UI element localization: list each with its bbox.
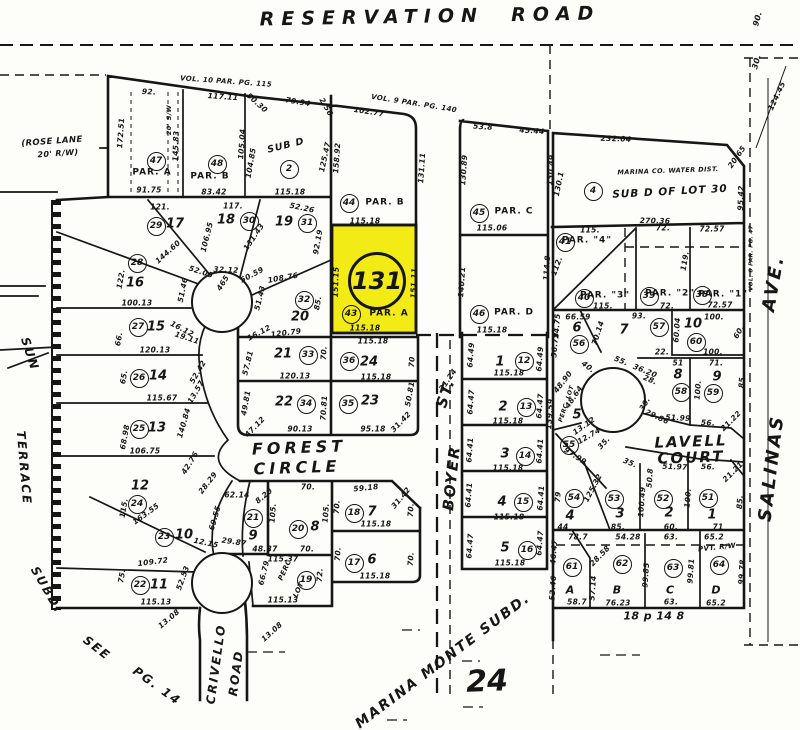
parcel-circle-33: 33	[299, 346, 318, 365]
dim-label: 76.23	[605, 599, 630, 607]
dim-label: 100.49	[637, 486, 647, 517]
dim-label: 105.	[322, 503, 331, 523]
dim-label: 64.41	[465, 437, 474, 463]
parcel-circle-60: 60	[687, 333, 706, 352]
parcel-circle-15: 15	[514, 493, 533, 512]
dim-label: 45.44	[519, 126, 545, 135]
parcel-circle-32: 32	[295, 291, 314, 310]
parcel-circle-45: 45	[470, 204, 489, 223]
parcel-circle-57: 57	[650, 318, 669, 337]
dim-label: 79	[554, 491, 562, 503]
parcel-circle-40: 40	[575, 289, 594, 308]
parcel-circle-48: 48	[208, 155, 227, 174]
dim-label: 64.41	[464, 482, 473, 508]
dim-label: 93.	[632, 312, 646, 320]
parcel-circle-4: 4	[584, 182, 603, 201]
dim-label: 172.51	[116, 117, 126, 148]
parcel-circle-23: 23	[155, 528, 174, 547]
lot-label: 5	[572, 409, 581, 422]
dim-label: 100.	[704, 313, 724, 321]
dim-label: 115.18	[361, 520, 392, 528]
dim-label: 78.7	[568, 533, 588, 541]
dim-label: 64.41	[536, 485, 545, 511]
dim-label: 64.47	[465, 533, 474, 559]
dim-label: 115.18	[275, 188, 306, 196]
parcel-circle-12: 12	[515, 352, 534, 371]
par-label: PAR. B	[190, 173, 229, 182]
dim-label: 56.	[701, 463, 715, 471]
dim-label: 70.	[334, 547, 342, 562]
dim-label: 99.85	[641, 562, 650, 588]
dim-label: 140.21	[457, 266, 467, 297]
parcel-circle-14: 14	[516, 447, 535, 466]
lot-label: 4	[497, 496, 506, 509]
dim-label: 64.49	[535, 346, 544, 372]
dim-label: 72.	[660, 302, 674, 310]
dim-label: 100.13	[122, 299, 153, 307]
parcel-circle-54: 54	[565, 489, 584, 508]
dim-label: 50.8	[646, 468, 655, 488]
parcel-circle-51: 51	[699, 489, 718, 508]
lot-label: 1	[707, 509, 716, 522]
lot-label: 14	[149, 370, 167, 383]
parcel-circle-38: 38	[693, 286, 712, 305]
dim-label: 92.	[142, 88, 157, 96]
dim-label: 100.	[703, 348, 723, 356]
lot-label: 20	[291, 311, 309, 324]
dim-label: 99.78	[737, 559, 746, 585]
dim-label: 106.75	[130, 447, 161, 455]
lot-label: 13	[148, 422, 166, 435]
parcel-circle-13: 13	[517, 398, 536, 417]
dim-label: 85.	[738, 374, 746, 389]
dim-label: 121.	[150, 203, 170, 211]
dim-label: 114.8	[542, 255, 551, 281]
lot-label: 12	[131, 480, 149, 493]
parcel-circle-16: 16	[518, 541, 537, 560]
parcel-circle-53: 53	[605, 490, 624, 509]
parcel-circle-25: 25	[130, 420, 149, 439]
lot-label: C	[666, 585, 674, 596]
dim-label: 72.57	[699, 225, 724, 233]
dim-label: 117.	[223, 202, 243, 210]
par-label: PAR. A	[369, 310, 408, 319]
lot-label: 3	[500, 448, 509, 461]
dim-label: 91.75	[136, 186, 161, 194]
lot-label: 21	[274, 348, 292, 361]
parcel-circle-2: 2	[280, 160, 299, 179]
dim-label: 70.81	[319, 395, 328, 421]
parcel-circle-47: 47	[147, 152, 166, 171]
dim-label: 48.37	[252, 545, 277, 553]
dim-label: 54.28	[615, 533, 640, 541]
dim-label: 56.79	[550, 332, 559, 358]
parcel-circle-29: 29	[147, 217, 166, 236]
lot-label: 2	[498, 401, 507, 414]
parcel-circle-41: 41	[556, 233, 575, 252]
note-label: VOL. 8 PAR. PG. 47	[749, 225, 755, 291]
dim-label: 22.	[655, 348, 669, 356]
dim-label: 115.13	[268, 596, 299, 604]
lot-label: 9	[712, 371, 721, 384]
lot-label: 8	[310, 521, 319, 534]
lot-label: 24	[466, 666, 509, 697]
dim-label: 95.18	[360, 425, 385, 433]
dim-label: 70.	[320, 346, 328, 361]
dim-label: 115.18	[493, 417, 524, 425]
dim-label: 105.04	[237, 128, 247, 159]
parcel-circle-43: 43	[342, 305, 361, 324]
dim-label: 99.81	[686, 558, 695, 584]
dim-label: 83.42	[201, 188, 226, 196]
dim-label: 64.47	[466, 389, 475, 415]
lot-label: 9	[248, 530, 257, 543]
lot-label: 7	[619, 324, 628, 337]
parcel-circle-19: 19	[297, 571, 316, 590]
dim-label: 151.15	[332, 267, 341, 298]
parcel-circle-44: 44	[340, 194, 359, 213]
dim-label: 115.18	[358, 337, 389, 345]
lot-label: D	[711, 585, 720, 596]
dim-label: 46.47	[549, 539, 558, 565]
dim-label: 100.	[694, 380, 703, 400]
par-label: PAR. C	[495, 208, 534, 217]
lot-label: 19	[275, 216, 293, 229]
dim-label: 115.18	[495, 559, 526, 567]
dim-label: 105.	[269, 503, 278, 523]
dim-label: 90.13	[287, 425, 312, 433]
parcel-circle-21: 21	[244, 509, 263, 528]
parcel-circle-34: 34	[297, 395, 316, 414]
lot-label: 6	[367, 554, 376, 567]
parcel-circle-55: 55	[560, 436, 579, 455]
dim-label: 117.11	[207, 92, 238, 102]
parcel-circle-35: 35	[339, 395, 358, 414]
dim-label: 70.	[333, 500, 341, 515]
lot-label: 10	[684, 318, 702, 331]
dim-label: 115.06	[477, 224, 508, 232]
dim-label: 63.	[664, 598, 678, 606]
parcel-circle-64: 64	[710, 556, 729, 575]
dim-label: 60.04	[672, 317, 681, 343]
dim-label: 64.47	[535, 393, 544, 419]
parcel-circle-24: 24	[128, 495, 147, 514]
dim-label: 115.18	[494, 369, 525, 377]
lot-label: 17	[166, 218, 184, 231]
parcel-circle-56: 56	[570, 335, 589, 354]
parcel-circle-39: 39	[640, 287, 659, 306]
lot-label: 23	[361, 395, 379, 408]
dim-label: 66.59	[565, 313, 590, 321]
dim-label: 56.	[701, 419, 716, 427]
dim-label: 115.18	[350, 324, 381, 332]
dim-label: 51	[672, 359, 683, 367]
dim-label: 64.49	[466, 342, 475, 368]
dim-label: 70.	[301, 483, 315, 491]
dim-label: 65.2	[704, 533, 724, 541]
par-label: PAR. D	[494, 309, 534, 318]
dim-label: 131.11	[417, 152, 427, 183]
dim-label: 32.12	[213, 266, 239, 275]
lot-label: 4	[565, 510, 574, 523]
dim-label: 51.99	[665, 414, 691, 423]
dim-label: 115.18	[350, 217, 381, 225]
dim-label: 151.11	[410, 268, 419, 299]
misc-dashes	[247, 630, 640, 720]
dim-label: 44	[557, 523, 568, 531]
dim-label: 115.18	[360, 572, 391, 580]
parcel-circle-26: 26	[130, 369, 149, 388]
dim-label: 158.92	[332, 142, 342, 173]
dim-label: 70.	[300, 545, 314, 553]
dim-label: 57.14	[588, 575, 597, 601]
dim-label: 72.	[656, 224, 670, 232]
dim-label: 115.67	[147, 394, 178, 402]
dim-label: 64.41	[535, 438, 544, 464]
dim-label: 72.	[316, 568, 324, 583]
dim-label: 120.13	[280, 372, 311, 380]
street-label: FOREST	[252, 438, 347, 457]
dim-label: 120.13	[140, 346, 171, 354]
lot-label: 24	[360, 356, 378, 369]
margin-lines	[756, 66, 786, 642]
dim-label: 72.57	[707, 301, 732, 309]
lot-label: 18	[217, 214, 235, 227]
dim-label: 70.	[407, 552, 415, 567]
dim-label: 139.59	[545, 398, 555, 429]
lot-label: 5	[500, 542, 509, 555]
parcel-circle-131[interactable]: 131	[348, 252, 406, 310]
parcel-circle-18: 18	[345, 504, 364, 523]
parcel-circle-28: 28	[128, 254, 147, 273]
parcel-circle-31: 31	[298, 214, 317, 233]
dim-label: 85.	[736, 495, 744, 510]
dim-label: 130.89	[459, 154, 469, 185]
parcel-circle-46: 46	[470, 305, 489, 324]
lot-label: 15	[147, 321, 165, 334]
dim-label: 70.	[407, 503, 415, 518]
dim-label: 115.13	[141, 598, 172, 606]
dim-label: 232.04	[601, 135, 632, 144]
parcel-circle-27: 27	[129, 318, 148, 337]
dim-label: 145.83	[172, 131, 181, 162]
dim-label: 70	[408, 356, 416, 368]
plat-map: RESERVATION ROADSALINASAVE.BOYERST.FORES…	[0, 0, 800, 730]
dim-label: 53.8	[473, 123, 493, 132]
dim-label: 65.2	[706, 599, 726, 607]
parcel-circle-30: 30	[240, 212, 259, 231]
par-label: PAR. B	[365, 199, 404, 208]
dim-label: 51.97	[662, 463, 687, 471]
dim-label: 63.	[664, 533, 678, 541]
dim-label: 62.14	[224, 491, 249, 499]
lot-label: 7	[367, 506, 376, 519]
dim-label: 115.18	[493, 464, 524, 472]
lot-label: 11	[150, 579, 168, 592]
dim-label: 115.	[580, 226, 600, 234]
parcel-circle-52: 52	[654, 490, 673, 509]
parcel-circle-63: 63	[664, 559, 683, 578]
parcel-circle-17: 17	[345, 554, 364, 573]
dim-label: 71	[712, 523, 723, 531]
parcel-circle-62: 62	[613, 555, 632, 574]
street-label: CIRCLE	[253, 458, 340, 477]
dim-label: 115.18	[361, 373, 392, 381]
parcel-circle-58: 58	[672, 383, 691, 402]
parcel-circle-22: 22	[131, 576, 150, 595]
dim-label: 85.	[611, 523, 625, 531]
dim-label: 95.42	[737, 185, 745, 210]
dim-label: 115.37	[268, 555, 299, 563]
lot-label: 6	[572, 322, 581, 335]
lot-label: A	[566, 585, 575, 596]
lot-label: 10	[175, 529, 193, 542]
subdivision-hatched-boundary	[51, 200, 61, 610]
dim-label: 100.	[684, 488, 693, 508]
lot-label: 22	[275, 396, 293, 409]
dim-label: 60.	[664, 523, 678, 531]
dim-label: 53.46	[548, 575, 557, 601]
lot-label: B	[613, 585, 621, 596]
dim-label: 64.47	[535, 530, 544, 556]
parcel-circle-59: 59	[704, 384, 723, 403]
note-label: 18 p 14 8	[623, 611, 684, 622]
lot-label: 3	[615, 508, 624, 521]
dim-label: 71.	[709, 359, 723, 367]
lot-label: 1	[495, 356, 504, 369]
parcel-circle-20: 20	[289, 520, 308, 539]
lot-label: 16	[126, 277, 144, 290]
dim-label: 115.18	[494, 513, 525, 521]
dim-label: 115.18	[477, 326, 508, 334]
dim-label: 115.	[593, 302, 613, 310]
parcel-circle-36: 36	[340, 352, 359, 371]
lot-label: 8	[673, 369, 682, 382]
dim-label: 58.7	[567, 598, 587, 606]
parcel-circle-61: 61	[563, 558, 582, 577]
